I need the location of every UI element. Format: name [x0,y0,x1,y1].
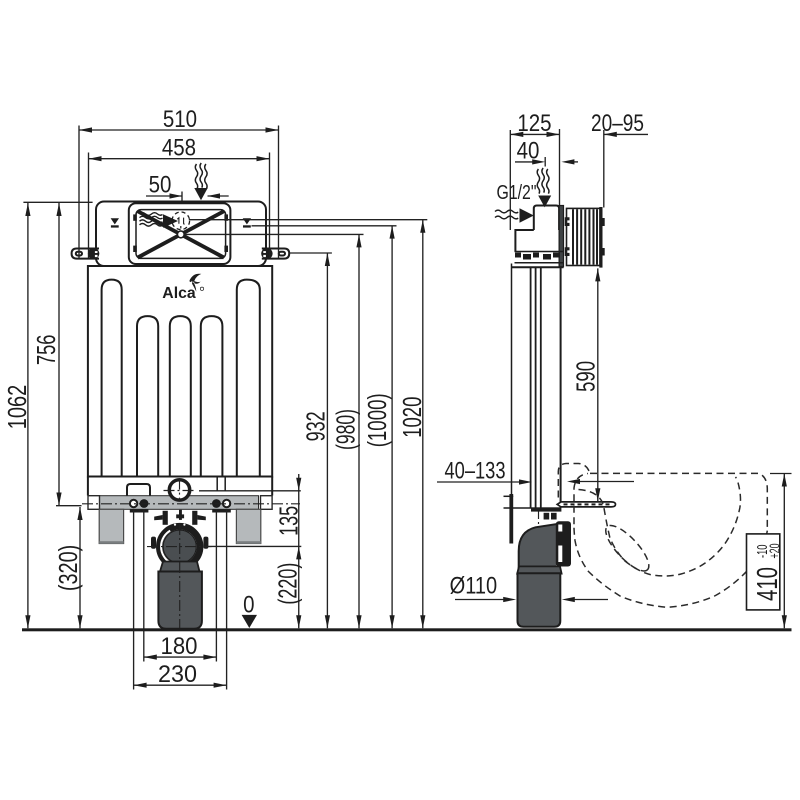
svg-text:20–95: 20–95 [591,110,644,137]
svg-text:(220): (220) [273,563,303,605]
svg-text:125: 125 [517,110,551,137]
svg-text:410: 410 [752,567,784,601]
svg-text:40–133: 40–133 [445,457,506,484]
svg-text:50: 50 [149,172,172,199]
svg-text:458: 458 [162,135,196,162]
svg-text:Ø110: Ø110 [450,573,498,600]
svg-text:(1000): (1000) [362,393,392,447]
svg-text:1020: 1020 [397,397,427,438]
svg-text:(980): (980) [330,409,360,450]
svg-text:932: 932 [301,411,331,441]
svg-text:1062: 1062 [2,385,32,430]
svg-text:756: 756 [31,335,61,365]
svg-text:510: 510 [163,106,197,133]
svg-text:135: 135 [273,506,303,536]
svg-text:230: 230 [158,661,197,688]
svg-text:Alca: Alca [162,285,196,302]
svg-text:-10: -10 [754,545,771,559]
svg-text:0: 0 [243,591,254,618]
svg-text:180: 180 [161,633,198,660]
svg-text:590: 590 [570,361,600,392]
svg-text:40: 40 [517,138,540,165]
svg-text:(320): (320) [53,545,83,591]
svg-text:G1/2": G1/2" [497,181,537,204]
